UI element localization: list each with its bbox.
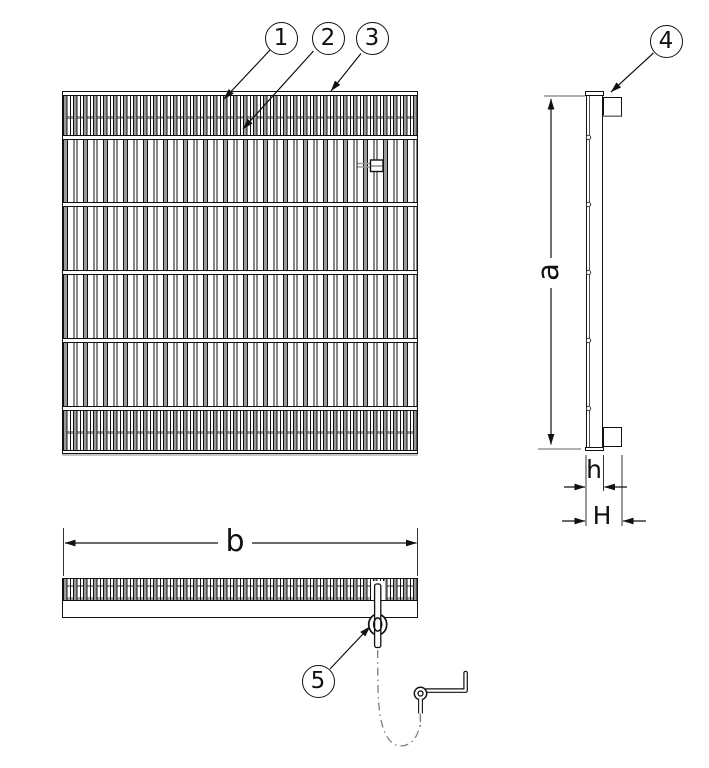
- hook-shank-fill: [419, 699, 423, 714]
- lifting-hook-inner: [426, 673, 465, 691]
- top-end-band: [63, 96, 417, 135]
- bearing-bars: [63, 140, 417, 202]
- front-view-grating-panel: [62, 91, 418, 454]
- callout-2-number: 2: [321, 27, 336, 50]
- fixing-clamp-top: [603, 97, 623, 117]
- leader-3: [331, 54, 361, 92]
- chain-anchor-notch: [371, 581, 385, 600]
- leader-5: [330, 627, 370, 670]
- callout-4-number: 4: [659, 30, 674, 53]
- bearing-bars: [63, 343, 417, 406]
- hook-eye-inner: [418, 691, 423, 696]
- side-view-bottom-edge: [585, 447, 604, 452]
- bearing-bars: [63, 207, 417, 270]
- dimension-b-label: b: [219, 527, 251, 557]
- bottom-edge-bar: [63, 450, 417, 455]
- bar-end-serration: [63, 579, 417, 600]
- dimension-h-label: h: [584, 457, 604, 482]
- chain-link-hole: [374, 618, 382, 631]
- grating-section: [63, 343, 417, 406]
- callout-3: 3: [356, 22, 389, 55]
- dimension-H-label: H: [592, 503, 612, 528]
- edge-view-bar-ends: [62, 578, 418, 601]
- fixing-clamp-bottom: [603, 427, 623, 447]
- callout-1: 1: [265, 22, 298, 55]
- callout-1-number: 1: [274, 27, 289, 50]
- bearing-bars-dense: [63, 411, 417, 450]
- side-view-bearing-bar: [586, 96, 603, 447]
- callout-4: 4: [650, 25, 683, 58]
- grating-section: [63, 275, 417, 338]
- callout-2: 2: [312, 22, 345, 55]
- leader-4: [611, 53, 654, 92]
- edge-view-banding-bar: [62, 601, 418, 618]
- grating-technical-drawing: 1 2 3 4 5 a b h H: [0, 0, 709, 768]
- callout-5-number: 5: [311, 670, 326, 693]
- bearing-bars-dense: [63, 96, 417, 135]
- lifting-hook-icon: [426, 673, 465, 691]
- grating-section: [63, 140, 417, 202]
- chain-phantom-curve: [378, 650, 421, 746]
- bottom-end-band: [63, 411, 417, 450]
- hook-eye-outer: [414, 687, 426, 699]
- dimension-a-label: a: [533, 257, 563, 287]
- grating-section: [63, 207, 417, 270]
- callout-3-number: 3: [365, 27, 380, 50]
- callout-5: 5: [302, 665, 335, 698]
- lifting-key: [414, 673, 465, 727]
- bearing-bars: [63, 275, 417, 338]
